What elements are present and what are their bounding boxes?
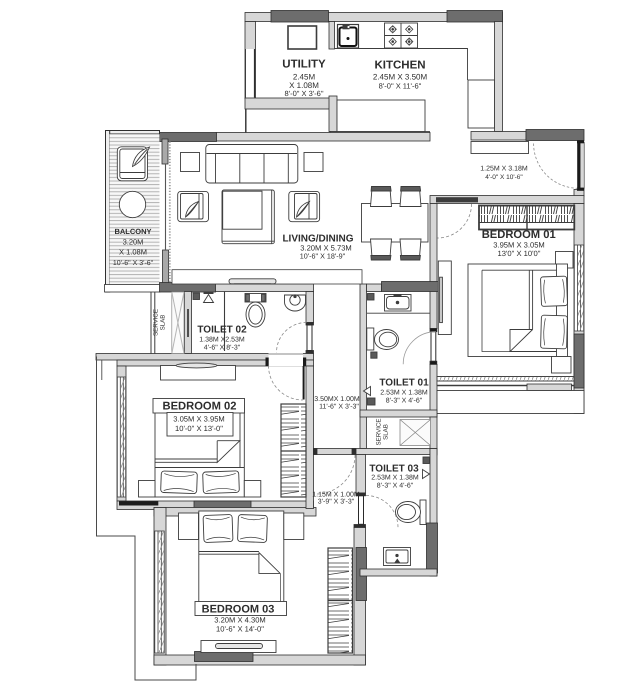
svg-text:1.15M X 1.00M: 1.15M X 1.00M — [312, 492, 360, 499]
svg-text:4'-0" X 10'-6": 4'-0" X 10'-6" — [485, 174, 523, 181]
svg-text:3.20M X 4.30M: 3.20M X 4.30M — [214, 616, 266, 625]
svg-text:10'-0" X 13'-0": 10'-0" X 13'-0" — [175, 424, 223, 433]
svg-text:SLAB: SLAB — [383, 424, 390, 440]
svg-text:3.50MX 1.00M: 3.50MX 1.00M — [314, 396, 360, 403]
svg-text:8'-3" X 4'-6": 8'-3" X 4'-6" — [377, 483, 414, 490]
svg-text:1.25M X 3.18M: 1.25M X 3.18M — [480, 166, 528, 173]
svg-text:BEDROOM 01: BEDROOM 01 — [482, 229, 556, 241]
svg-text:13'0" X 10'0": 13'0" X 10'0" — [498, 249, 541, 258]
svg-text:1.38M X2.53M: 1.38M X2.53M — [199, 337, 245, 344]
svg-text:BALCONY: BALCONY — [114, 227, 151, 236]
svg-text:3.05M X 3.95M: 3.05M X 3.95M — [173, 415, 225, 424]
svg-text:2.53M X 1.38M: 2.53M X 1.38M — [371, 475, 419, 482]
svg-text:TOILET 01: TOILET 01 — [379, 378, 429, 389]
svg-text:8'-0" X 11'-6": 8'-0" X 11'-6" — [379, 82, 422, 91]
svg-text:10'-6" X 14'-0": 10'-6" X 14'-0" — [216, 625, 264, 634]
svg-text:BEDROOM 02: BEDROOM 02 — [163, 401, 237, 413]
svg-text:SLAB: SLAB — [160, 315, 167, 331]
svg-text:11'-6" X 3'-3": 11'-6" X 3'-3" — [319, 403, 359, 410]
svg-text:KITCHEN: KITCHEN — [374, 60, 425, 72]
svg-text:X 1.08M: X 1.08M — [119, 248, 147, 257]
svg-text:8'-3" X 4'-6": 8'-3" X 4'-6" — [386, 398, 423, 405]
svg-text:TOILET 03: TOILET 03 — [369, 464, 419, 475]
svg-text:8'-0" X 3'-6": 8'-0" X 3'-6" — [284, 89, 323, 98]
svg-text:SERVICE: SERVICE — [376, 418, 383, 445]
svg-text:2.53M X 1.38M: 2.53M X 1.38M — [380, 390, 428, 397]
svg-text:BEDROOM 03: BEDROOM 03 — [202, 604, 275, 616]
svg-text:SERVICE: SERVICE — [153, 309, 160, 336]
svg-text:10'-6" X 3'-6": 10'-6" X 3'-6" — [113, 260, 154, 267]
svg-text:3'-9" X 3'-3": 3'-9" X 3'-3" — [318, 499, 355, 506]
svg-text:UTILITY: UTILITY — [282, 59, 326, 71]
svg-text:10'-6" X 18'-9": 10'-6" X 18'-9" — [300, 252, 346, 261]
svg-text:2.45M X 3.50M: 2.45M X 3.50M — [373, 73, 428, 82]
svg-text:TOILET 02: TOILET 02 — [197, 325, 247, 336]
svg-text:4'-6" X 8'-3": 4'-6" X 8'-3" — [204, 345, 241, 352]
svg-text:3.20M: 3.20M — [123, 238, 144, 247]
